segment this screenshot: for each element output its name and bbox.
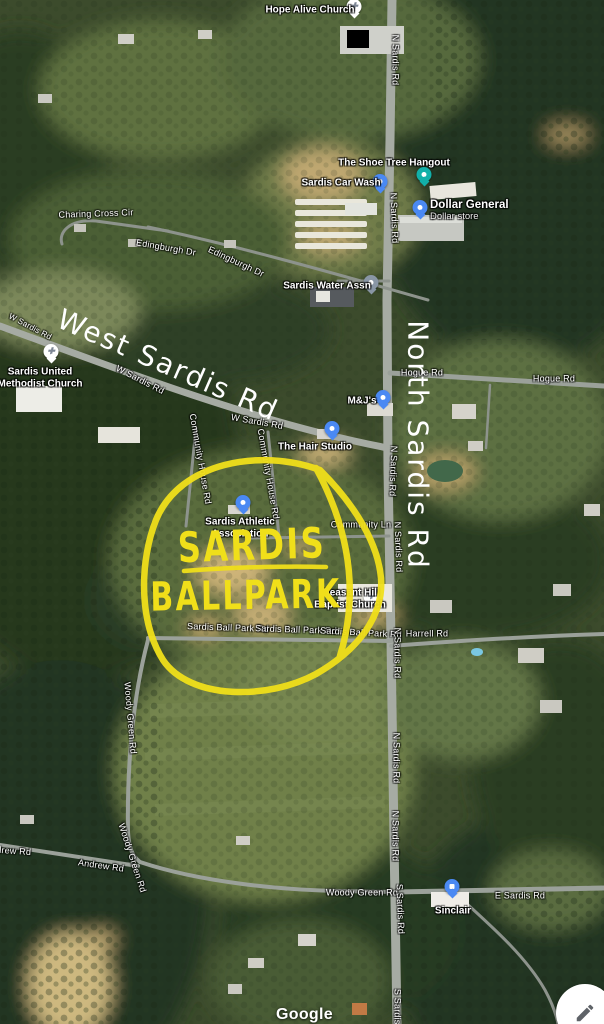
road-label: Edingburgh Dr bbox=[207, 245, 266, 279]
poi-marker-icon[interactable] bbox=[417, 167, 432, 188]
road-label: N Sardis Rd bbox=[388, 445, 399, 496]
draw-pen-button[interactable] bbox=[556, 984, 604, 1024]
road-label: E Sardis Rd bbox=[495, 892, 545, 901]
road-label: W Sardis Rd bbox=[114, 364, 165, 396]
road-label: N Sardis Rd bbox=[393, 628, 402, 679]
poi-label[interactable]: Sardis Water Assn bbox=[283, 280, 371, 292]
road-label: Hogue Rd bbox=[533, 375, 575, 384]
road-label: W Sardis Rd bbox=[7, 312, 52, 341]
road-label: N Sardis Rd bbox=[393, 521, 404, 572]
satellite-map[interactable]: N Sardis Rd N Sardis Rd Charing Cross Ci… bbox=[0, 0, 604, 1024]
poi-label[interactable]: Pleasant Hill Baptist Church bbox=[314, 588, 386, 611]
poi-line: Sardis Athletic bbox=[205, 517, 275, 529]
roads-group bbox=[0, 0, 604, 1024]
poi-marker-icon[interactable] bbox=[236, 495, 251, 516]
road-label: N Sardis Rd bbox=[391, 35, 400, 86]
road-label: S Sardis Rd bbox=[395, 884, 406, 935]
pond bbox=[427, 460, 463, 482]
road-label: N Sardis Rd bbox=[389, 192, 400, 243]
annotation-west-sardis-rd: West Sardis Rd bbox=[52, 302, 283, 427]
poi-line: Pleasant Hill bbox=[314, 588, 386, 600]
road-label: Andrew Rd bbox=[0, 845, 31, 857]
road-label: Community House Rd bbox=[256, 428, 281, 520]
poi-label[interactable]: Dollar General Dollar store bbox=[430, 199, 509, 223]
poi-label[interactable]: Sardis Athletic Association bbox=[205, 517, 275, 540]
poi-line: Baptist Church bbox=[314, 599, 386, 611]
poi-label[interactable]: Sardis Car Wash bbox=[301, 177, 380, 189]
road-label: Woody Green Rd bbox=[117, 822, 148, 893]
road-label: Woody Green Rd bbox=[122, 682, 137, 755]
road-label: Community Ln bbox=[331, 521, 391, 530]
poi-label[interactable]: The Hair Studio bbox=[278, 441, 352, 453]
poi-label[interactable]: Sardis United Methodist Church bbox=[0, 367, 83, 390]
road-label: Edingburgh Dr bbox=[135, 238, 196, 257]
road-label: Community House Rd bbox=[188, 413, 213, 505]
poi-marker-icon[interactable] bbox=[376, 390, 391, 411]
poi-line: Methodist Church bbox=[0, 378, 83, 390]
road-label: N Sardis Rd bbox=[392, 733, 401, 784]
annotation-ballpark: BALLPARK bbox=[150, 571, 342, 620]
annotation-ink-layer bbox=[0, 0, 604, 1024]
poi-marker-icon[interactable] bbox=[413, 200, 428, 221]
terrain-layer bbox=[0, 0, 604, 1024]
highlight-circle bbox=[144, 460, 381, 692]
gas-station-marker-icon[interactable] bbox=[445, 879, 460, 900]
road-label: N Sardis Rd bbox=[391, 811, 400, 862]
poi-label[interactable]: The Shoe Tree Hangout bbox=[338, 157, 450, 169]
road-label: Sardis Ball Park Rd bbox=[320, 626, 402, 639]
poi-label[interactable]: Hope Alive Church bbox=[265, 4, 354, 16]
road-label: Woody Green Rd bbox=[326, 889, 398, 898]
field-stripes bbox=[145, 696, 395, 816]
poi-line: Association bbox=[205, 528, 275, 540]
road-label: Charing Cross Cir bbox=[58, 208, 133, 220]
road-label: Andrew Rd bbox=[77, 858, 124, 873]
poi-label[interactable]: M&J's bbox=[347, 395, 376, 407]
highlight-underline bbox=[184, 567, 326, 571]
poi-subtitle: Dollar store bbox=[430, 212, 509, 223]
google-logo: Google bbox=[276, 1006, 333, 1024]
road-label: S Sardis Rd bbox=[393, 989, 402, 1024]
annotation-north-sardis-rd: North Sardis Rd bbox=[402, 320, 435, 569]
landcover-group bbox=[0, 0, 604, 1024]
poi-line: Sardis United bbox=[0, 367, 83, 379]
poi-marker-icon[interactable] bbox=[325, 421, 340, 442]
pool bbox=[471, 648, 483, 656]
church-marker-icon[interactable]: ✚ bbox=[44, 344, 59, 365]
road-label: Hogue Rd bbox=[401, 369, 443, 378]
poi-label[interactable]: Sinclair bbox=[435, 905, 471, 917]
pen-icon bbox=[574, 1002, 596, 1024]
road-label: Harrell Rd bbox=[406, 630, 449, 639]
